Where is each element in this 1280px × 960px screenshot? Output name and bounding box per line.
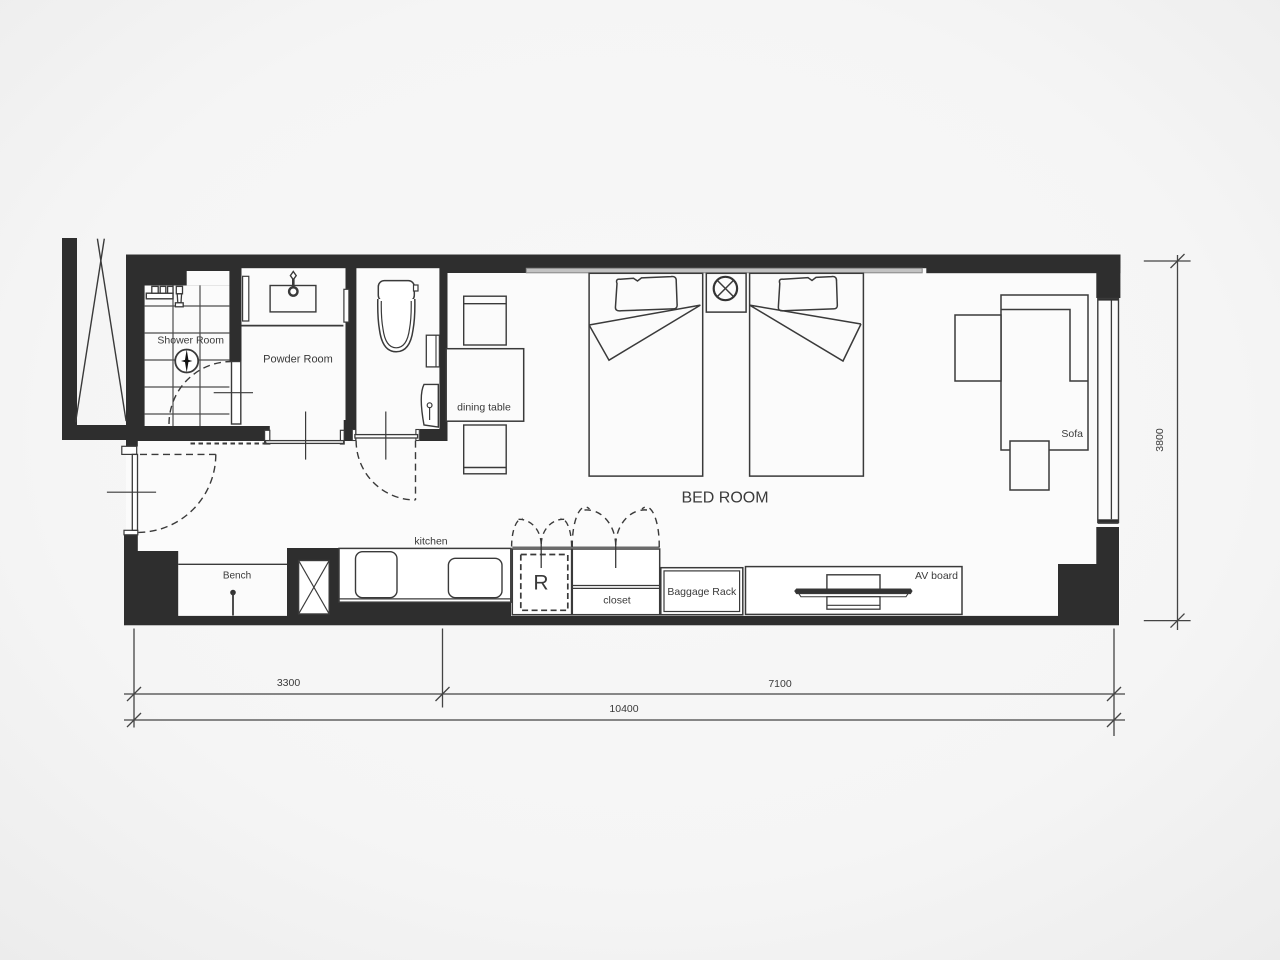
svg-text:3800: 3800 [1154,428,1166,452]
svg-text:Powder Room: Powder Room [263,354,333,366]
svg-text:Sofa: Sofa [1061,428,1083,440]
svg-text:AV board: AV board [915,570,958,582]
svg-text:Baggage Rack: Baggage Rack [667,586,737,598]
svg-text:dining table: dining table [457,402,511,414]
svg-text:7100: 7100 [768,678,792,690]
svg-text:BED ROOM: BED ROOM [681,490,768,507]
svg-text:kitchen: kitchen [414,536,447,548]
svg-text:R: R [533,572,548,595]
svg-text:10400: 10400 [609,703,638,715]
svg-text:3300: 3300 [277,677,301,689]
svg-text:Bench: Bench [223,571,251,582]
svg-text:Shower Room: Shower Room [157,335,224,347]
svg-text:closet: closet [603,595,631,607]
